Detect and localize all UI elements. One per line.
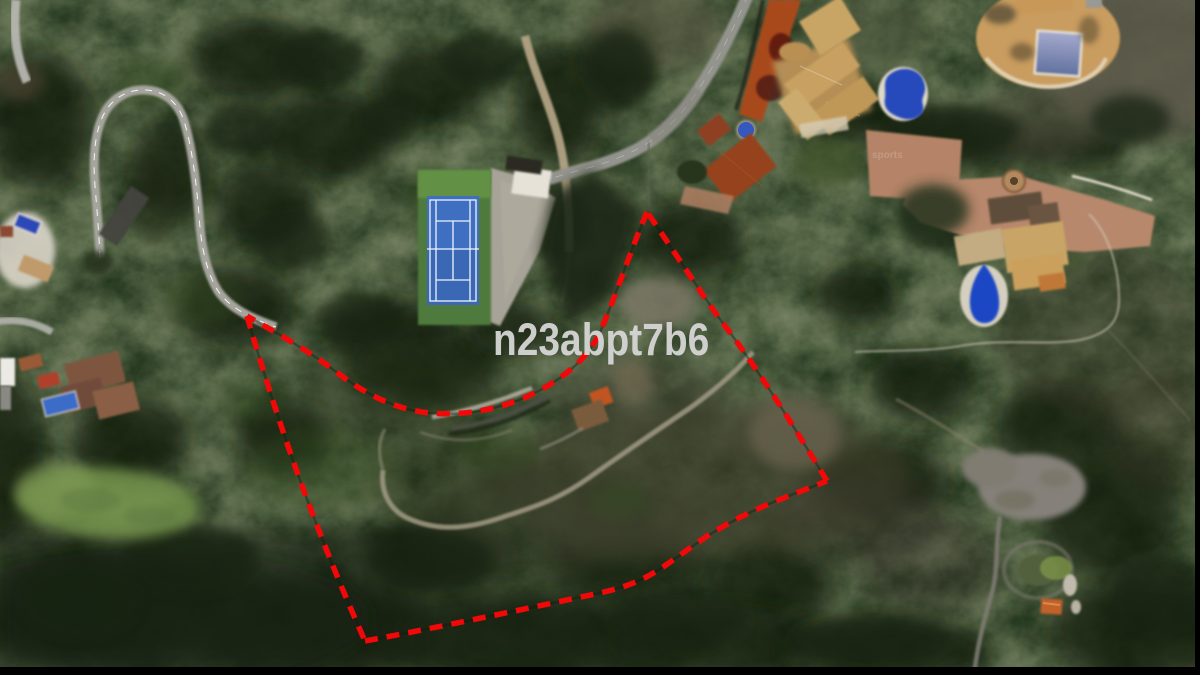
- svg-text:n23abpt7b6: n23abpt7b6: [493, 314, 709, 364]
- svg-text:sports: sports: [872, 150, 903, 161]
